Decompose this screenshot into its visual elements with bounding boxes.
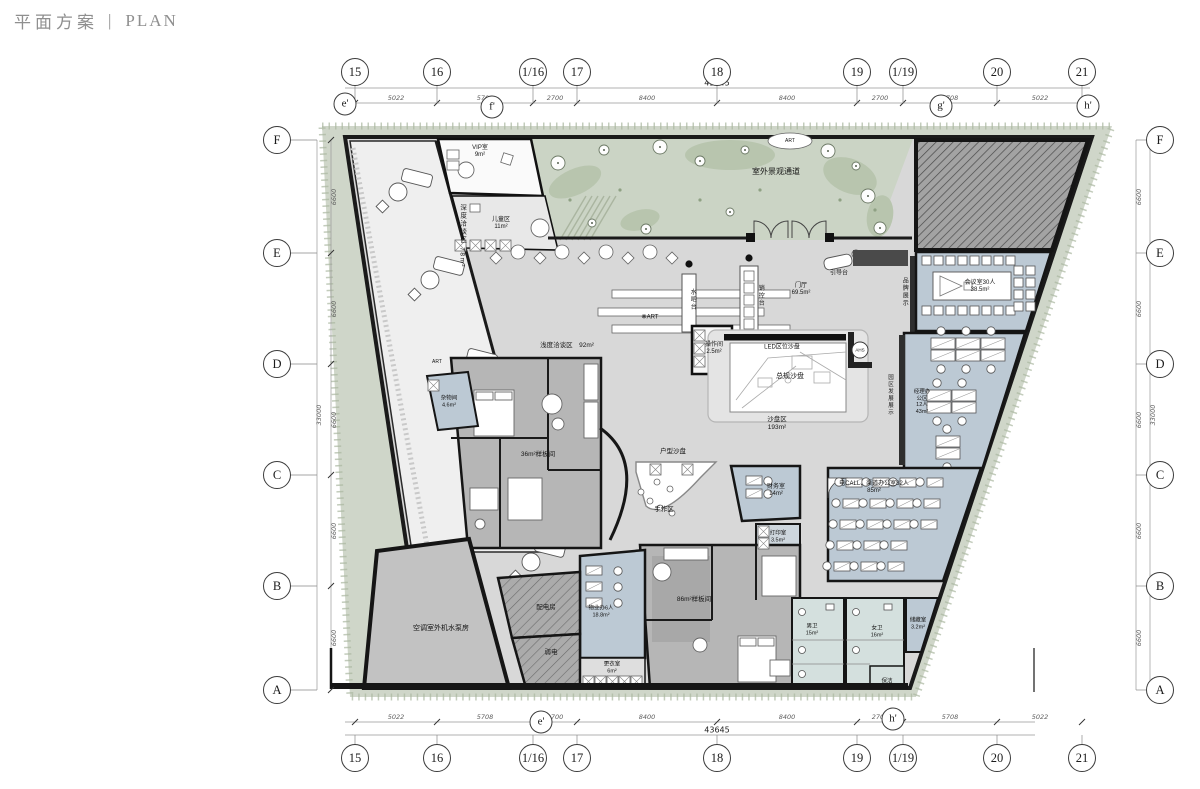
brand-wall [853, 250, 908, 266]
property-office-shape [580, 550, 645, 658]
power-room-shape [498, 572, 580, 638]
finance-room-shape [731, 466, 800, 521]
model-room-86-shape [640, 545, 800, 688]
plan-sheet: 平面方案 | PLAN [0, 0, 1200, 789]
model-room-36-shape [451, 358, 627, 548]
meeting-room-shape [916, 252, 1051, 331]
water-bar-counter [682, 274, 696, 332]
ahs-sign-circle [852, 342, 868, 358]
floor-plan-drawing [0, 0, 1200, 789]
courtyard [506, 133, 913, 240]
led-screen-bar [724, 334, 846, 341]
sand-table-platform [708, 330, 872, 422]
vip-room-shape [438, 139, 543, 196]
art-sign-oval [768, 133, 812, 149]
